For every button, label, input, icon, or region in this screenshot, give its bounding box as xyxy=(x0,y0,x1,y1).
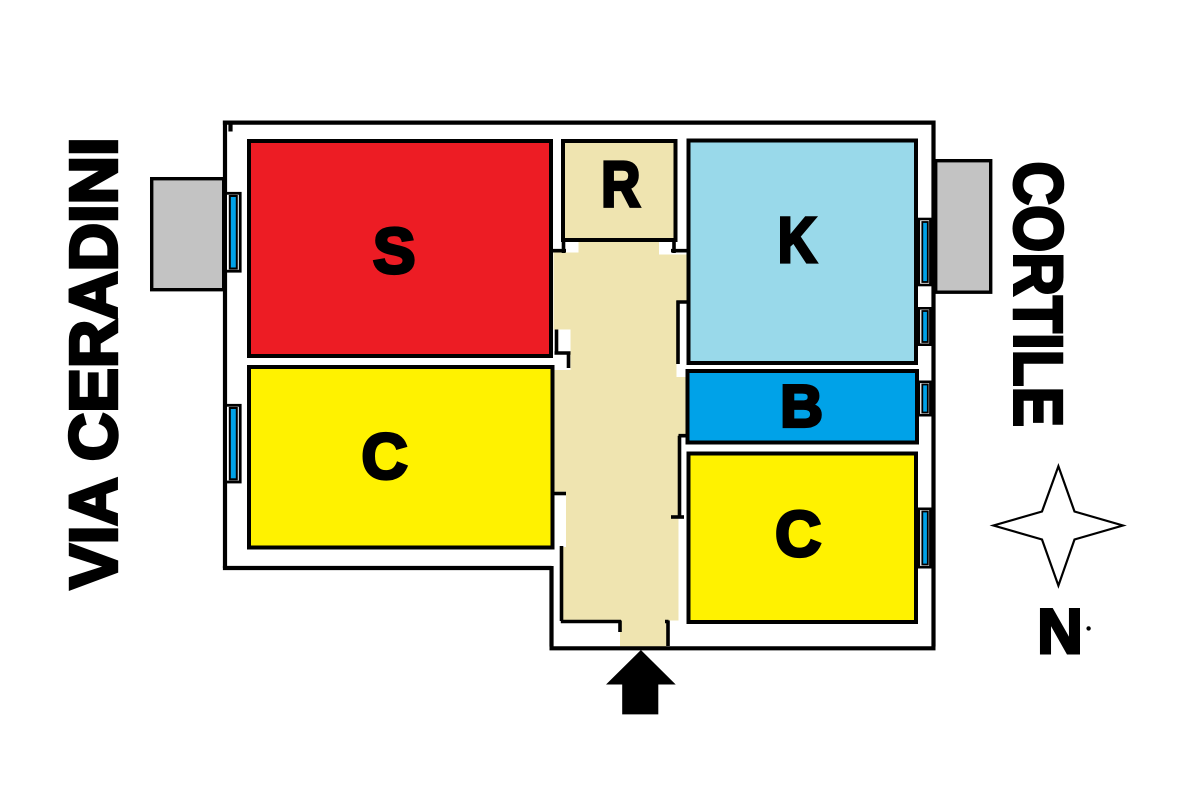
svg-text:VIA CERADINI: VIA CERADINI xyxy=(57,137,132,589)
svg-text:R: R xyxy=(601,148,640,220)
svg-text:S: S xyxy=(373,215,416,287)
svg-text:B: B xyxy=(780,374,823,440)
svg-text:K: K xyxy=(778,204,817,277)
svg-text:N: N xyxy=(1037,597,1083,667)
svg-text:C: C xyxy=(775,498,821,570)
svg-text:C: C xyxy=(361,421,407,493)
svg-text:CORTILE: CORTILE xyxy=(1000,162,1078,427)
